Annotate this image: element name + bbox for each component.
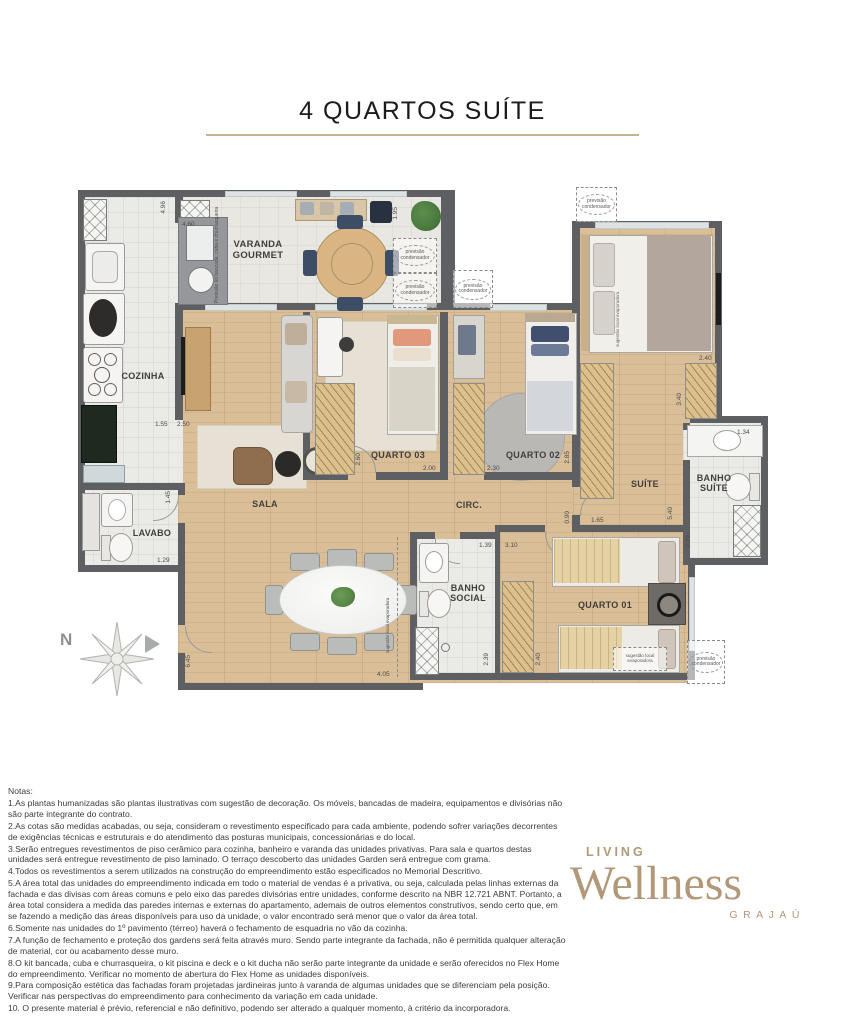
dining-chair xyxy=(327,637,357,655)
bed-quarto03-pillow xyxy=(393,348,431,361)
stove-burner xyxy=(88,353,101,366)
evaporadora-dashed-line xyxy=(397,537,398,677)
bed-quarto03-headboard xyxy=(387,315,437,324)
room-label-quarto03: QUARTO 03 xyxy=(358,450,438,460)
dim-label: 1.45 xyxy=(165,491,172,504)
wall xyxy=(440,312,448,472)
room-label-lavabo: LAVABO xyxy=(117,528,187,538)
room-label-varanda: VARANDA GOURMET xyxy=(217,240,299,262)
sofa-pillow xyxy=(285,323,307,345)
compass-north-label: N xyxy=(60,630,72,650)
shower-head-icon xyxy=(441,643,450,652)
window xyxy=(490,304,547,311)
dim-label: 2.60 xyxy=(355,453,362,466)
dim-label: 5.40 xyxy=(667,507,674,520)
wall xyxy=(573,525,688,532)
varanda-chair xyxy=(303,250,317,276)
wall xyxy=(683,460,690,565)
dim-label: 1.55 xyxy=(155,421,168,428)
bench-pillow xyxy=(340,202,354,215)
note-item: 4.Todos os revestimentos a serem utiliza… xyxy=(8,866,568,877)
window xyxy=(595,222,709,229)
room-label-quarto02: QUARTO 02 xyxy=(493,450,573,460)
banho-social-basin xyxy=(425,551,443,573)
floor-plan: Previsão kit bancada, cuba e churrasquei… xyxy=(75,185,775,700)
dim-label: 3.10 xyxy=(505,542,518,549)
kit-counter-icon xyxy=(186,225,214,261)
wall xyxy=(78,565,185,572)
note-item: 8.O kit bancada, cuba e churrasqueira, o… xyxy=(8,958,568,980)
desk-chair-quarto03 xyxy=(339,337,354,352)
wardrobe-suite-left xyxy=(580,363,614,499)
page-title: 4 QUARTOS SUÍTE xyxy=(0,97,845,126)
notes-section: Notas: 1.As plantas humanizadas são plan… xyxy=(8,786,568,1015)
dim-label: 2.00 xyxy=(423,465,436,472)
armchair xyxy=(233,447,273,485)
sofa-pillow xyxy=(285,381,307,403)
bed-suite-pillow xyxy=(593,243,615,287)
note-item: 7.A função de fechamento e proteção dos … xyxy=(8,935,568,957)
room-label-sala: SALA xyxy=(235,499,295,509)
note-item: 9.Para composição estética das fachadas … xyxy=(8,980,568,1002)
previsao-condensador-box: previsão condensador xyxy=(576,187,617,222)
wall xyxy=(416,673,695,680)
note-item: 10. O presente material é prévio, refere… xyxy=(8,1003,568,1014)
kitchen-counter-dark xyxy=(81,405,117,463)
dim-label: 2.40 xyxy=(699,355,712,362)
room-label-banho-suite: BANHO SUÍTE xyxy=(691,473,737,494)
compass-rose-icon xyxy=(78,620,156,698)
shaft-hatch xyxy=(180,200,210,218)
previsao-condensador-box: previsão condensador xyxy=(453,270,493,308)
dim-label: 3.40 xyxy=(676,393,683,406)
bed-quarto02-pillow xyxy=(531,344,569,356)
note-item: 2.As cotas são medidas acabadas, ou seja… xyxy=(8,821,568,843)
wardrobe-suite-right xyxy=(685,363,717,419)
wall xyxy=(460,532,495,539)
wardrobe-quarto01 xyxy=(502,581,534,673)
lavabo-cabinet xyxy=(82,493,100,551)
wall xyxy=(495,532,500,680)
bed-quarto02-pillow xyxy=(531,326,569,342)
desk-quarto01-chair xyxy=(657,593,681,617)
desk-items-quarto02 xyxy=(458,325,476,355)
sugestao-evaporadora-label: sugestão local evaporadora xyxy=(615,247,620,347)
wall xyxy=(683,558,768,565)
kitchen-sink-bowl xyxy=(92,251,118,283)
notes-heading: Notas: xyxy=(8,786,568,797)
bed-quarto01-a-pillow xyxy=(658,541,676,583)
bed-quarto01-a-blanket xyxy=(554,539,620,583)
room-label-circ: CIRC. xyxy=(439,500,499,510)
room-label-quarto01: QUARTO 01 xyxy=(565,600,645,610)
window xyxy=(225,191,297,197)
previsao-condensador-box: previsão condensador xyxy=(393,238,437,273)
bed-quarto03-blanket xyxy=(389,367,435,431)
dim-label: 0.90 xyxy=(564,511,571,524)
sugestao-evaporadora-label: sugestão local evaporadora xyxy=(385,563,390,653)
wardrobe-quarto03 xyxy=(315,383,355,475)
stove-burner xyxy=(88,383,101,396)
room-label-suite: SUÍTE xyxy=(615,479,675,489)
stove-burner xyxy=(104,353,117,366)
kitchen-oven-door xyxy=(89,299,117,337)
bed-quarto02-headboard xyxy=(525,313,575,322)
dim-label: 2.40 xyxy=(535,653,542,666)
dim-label: 1.34 xyxy=(737,429,750,436)
note-item: 5.A área total das unidades do empreendi… xyxy=(8,878,568,922)
previsao-condensador-box: previsão condensador xyxy=(687,640,725,684)
wall xyxy=(376,472,448,480)
brand-logo: LIVING Wellness GRAJAÚ xyxy=(570,845,815,921)
dim-label: 2.39 xyxy=(483,653,490,666)
bench-pillow xyxy=(320,202,334,215)
logo-wellness-text: Wellness xyxy=(570,861,815,907)
bed-suite-pillow xyxy=(593,291,615,335)
dining-chair xyxy=(290,633,320,651)
wall xyxy=(178,483,185,495)
compass: N xyxy=(56,616,166,706)
previsao-condensador-box: previsão condensador xyxy=(393,273,437,308)
dim-label: 1.29 xyxy=(157,557,170,564)
side-table-round xyxy=(275,451,301,477)
wall xyxy=(78,483,178,490)
dim-label: 6.45 xyxy=(185,655,192,668)
kit-cuba-icon xyxy=(188,267,214,293)
bed-quarto03-pillow xyxy=(393,329,431,346)
varanda-side-table xyxy=(370,201,392,223)
bed-suite-headboard xyxy=(581,235,589,351)
tv-panel xyxy=(185,327,211,411)
varanda-chair xyxy=(337,215,363,229)
dim-label: 1.95 xyxy=(392,207,399,220)
window xyxy=(330,191,407,197)
title-underline xyxy=(206,134,639,136)
sugestao-evaporadora-box: sugestão local evaporadora xyxy=(613,647,667,671)
shower-banho-suite xyxy=(733,505,761,557)
wall xyxy=(484,472,572,480)
room-label-banho-social: BANHO SOCIAL xyxy=(443,583,493,604)
room-label-cozinha: COZINHA xyxy=(108,371,178,381)
dim-label: 4.96 xyxy=(160,201,167,214)
tv-icon xyxy=(181,337,185,395)
dim-label: 1.39 xyxy=(479,542,492,549)
wardrobe-quarto02 xyxy=(453,383,485,475)
dim-label: 4.05 xyxy=(377,671,390,678)
logo-grajau-text: GRAJAÚ xyxy=(570,909,805,921)
dim-label: 2.85 xyxy=(564,451,571,464)
lavabo-sink-bowl xyxy=(108,499,126,521)
dim-label: 4.60 xyxy=(182,221,195,228)
shower-banho-social xyxy=(415,627,439,675)
page: 4 QUARTOS SUÍTE xyxy=(0,0,845,1024)
dim-label: 2.50 xyxy=(177,421,190,428)
bench-pillow xyxy=(300,202,314,215)
window xyxy=(205,304,277,311)
bed-suite-blanket xyxy=(647,235,711,351)
varanda-table-ring xyxy=(331,243,373,285)
note-item: 1.As plantas humanizadas são plantas ilu… xyxy=(8,798,568,820)
tv-suite-icon xyxy=(716,273,721,325)
shaft-hatch xyxy=(83,199,107,241)
dim-label: 2.30 xyxy=(487,465,500,472)
kitchen-fridge xyxy=(83,465,125,483)
dim-label: 2.29 xyxy=(685,535,692,548)
stove-burner xyxy=(104,383,117,396)
plant-icon xyxy=(411,201,441,231)
note-item: 3.Serão entregues revestimentos de piso … xyxy=(8,844,568,866)
note-item: 6.Somente nas unidades do 1º pavimento (… xyxy=(8,923,568,934)
varanda-chair xyxy=(337,297,363,311)
dim-label: 1.65 xyxy=(591,517,604,524)
wall xyxy=(178,683,423,690)
bed-quarto02-blanket xyxy=(527,381,573,431)
wall xyxy=(495,525,545,532)
